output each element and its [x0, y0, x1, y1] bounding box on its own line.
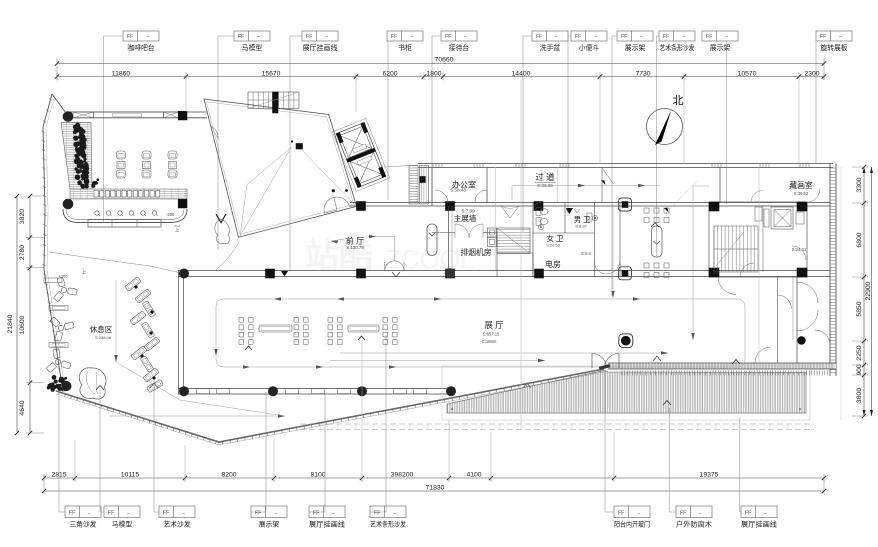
svg-text:22900: 22900: [865, 281, 872, 300]
svg-text:–: –: [257, 34, 260, 40]
svg-text:–: –: [410, 34, 413, 40]
svg-text:S:657.15: S:657.15: [483, 332, 500, 337]
svg-text:11860: 11860: [112, 71, 131, 78]
svg-text:6200: 6200: [382, 71, 397, 78]
svg-text:–: –: [325, 34, 328, 40]
svg-text:电房: 电房: [545, 259, 561, 269]
svg-text:–: –: [594, 34, 597, 40]
svg-text:FF: FF: [706, 34, 713, 40]
svg-text:3820: 3820: [19, 209, 26, 224]
svg-text:FF: FF: [306, 34, 313, 40]
svg-text:FF: FF: [536, 34, 543, 40]
svg-text:展示架: 展示架: [259, 521, 280, 529]
svg-text:21840: 21840: [7, 314, 14, 333]
svg-text:小便斗: 小便斗: [579, 43, 600, 52]
svg-text:2300: 2300: [804, 71, 819, 78]
svg-text:北: 北: [673, 94, 684, 107]
svg-text:S:7.89: S:7.89: [461, 209, 475, 214]
svg-text:展示架: 展示架: [625, 44, 646, 52]
svg-text:6800: 6800: [856, 232, 863, 247]
svg-text:S:8.37: S:8.37: [575, 224, 587, 229]
svg-text:咖啡吧台: 咖啡吧台: [127, 43, 154, 52]
svg-text:–: –: [682, 34, 685, 40]
svg-text:户外防腐木: 户外防腐木: [676, 520, 712, 529]
svg-text:展示架: 展示架: [710, 44, 731, 52]
svg-text:FF: FF: [618, 511, 625, 517]
svg-text:900: 900: [856, 364, 863, 376]
svg-text:14400: 14400: [512, 71, 531, 78]
svg-text:7730: 7730: [635, 71, 650, 78]
svg-text:FF: FF: [680, 511, 687, 517]
svg-text:接待台: 接待台: [449, 43, 470, 52]
svg-text:阳台内开玻门: 阳台内开玻门: [614, 520, 650, 529]
svg-text:过 道: 过 道: [535, 172, 555, 182]
svg-text:FF: FF: [238, 34, 245, 40]
svg-text:FF: FF: [313, 511, 320, 517]
svg-text:398200: 398200: [391, 472, 414, 479]
svg-text:3300: 3300: [856, 177, 863, 192]
svg-text:–: –: [332, 511, 335, 517]
svg-text:15670: 15670: [262, 71, 281, 78]
svg-text:艺术沙发: 艺术沙发: [163, 520, 190, 529]
svg-text:5850: 5850: [856, 301, 863, 316]
svg-text:S:8.4: S:8.4: [581, 251, 591, 256]
svg-text:8200: 8200: [221, 472, 236, 479]
svg-text:8100: 8100: [310, 472, 325, 479]
svg-text:–: –: [637, 511, 640, 517]
svg-text:3800: 3800: [856, 388, 863, 403]
svg-text:洗手盆: 洗手盆: [540, 43, 561, 52]
svg-text:上: 上: [82, 268, 86, 274]
svg-text:藏画室: 藏画室: [789, 180, 813, 190]
svg-text:展厅挂画线: 展厅挂画线: [309, 520, 345, 529]
svg-text:FF: FF: [663, 34, 670, 40]
svg-text:S:10.53: S:10.53: [546, 243, 561, 248]
svg-text:FF: FF: [820, 34, 827, 40]
svg-text:马模型: 马模型: [242, 43, 263, 52]
svg-text:上: 上: [175, 226, 179, 232]
svg-text:马模型: 马模型: [112, 520, 133, 529]
svg-text:1800: 1800: [426, 71, 441, 78]
svg-text:FF: FF: [575, 34, 582, 40]
svg-text:–: –: [146, 34, 149, 40]
svg-text:–: –: [555, 34, 558, 40]
svg-text:10115: 10115: [121, 472, 140, 479]
svg-text:–: –: [725, 34, 728, 40]
svg-text:FF: FF: [445, 34, 452, 40]
svg-text:FF: FF: [745, 511, 752, 517]
svg-text:S:24.31: S:24.31: [792, 247, 807, 252]
svg-text:–: –: [464, 34, 467, 40]
svg-text:4100: 4100: [466, 472, 481, 479]
svg-text:前 厅: 前 厅: [346, 236, 364, 246]
svg-text:休息区: 休息区: [90, 324, 113, 334]
svg-text:4640: 4640: [19, 400, 26, 415]
svg-text:展厅挂画线: 展厅挂画线: [741, 520, 777, 529]
svg-text:–: –: [640, 34, 643, 40]
svg-text:FF: FF: [255, 511, 262, 517]
svg-text:FF: FF: [108, 511, 115, 517]
svg-text:S:58.48: S:58.48: [450, 188, 466, 193]
svg-text:FF: FF: [374, 511, 381, 517]
svg-text:艺术条形沙发: 艺术条形沙发: [370, 520, 406, 529]
svg-text:10570: 10570: [738, 71, 757, 78]
svg-text:FF: FF: [391, 34, 398, 40]
svg-text:C:156m: C:156m: [482, 339, 497, 344]
svg-text:展 厅: 展 厅: [484, 320, 503, 330]
svg-text:–: –: [839, 34, 842, 40]
svg-text:FF: FF: [621, 34, 628, 40]
svg-text:2780: 2780: [19, 245, 26, 260]
svg-text:–: –: [764, 511, 767, 517]
svg-text:书柜: 书柜: [398, 43, 412, 52]
svg-text:S:39.52: S:39.52: [794, 191, 809, 196]
svg-text:S:130.78: S:130.78: [346, 245, 364, 250]
svg-text:–: –: [393, 511, 396, 517]
svg-text:–: –: [127, 511, 130, 517]
svg-text:–: –: [182, 511, 185, 517]
svg-text:2250: 2250: [856, 345, 863, 360]
svg-text:70660: 70660: [435, 57, 454, 64]
svg-text:FF: FF: [127, 34, 134, 40]
svg-text:展厅挂画线: 展厅挂画线: [303, 43, 338, 52]
svg-text:–: –: [88, 511, 91, 517]
svg-text:–: –: [699, 511, 702, 517]
svg-text:三角沙发: 三角沙发: [69, 520, 96, 529]
svg-text:艺术条形沙发: 艺术条形沙发: [660, 43, 695, 52]
svg-text:排烟机房: 排烟机房: [460, 247, 491, 257]
svg-text:S:298.06: S:298.06: [95, 335, 112, 340]
svg-text:FF: FF: [69, 511, 76, 517]
svg-text:FF: FF: [163, 511, 170, 517]
svg-text:19375: 19375: [700, 472, 719, 479]
svg-text:旋转展板: 旋转展板: [820, 43, 847, 52]
svg-text:71830: 71830: [426, 485, 445, 492]
svg-text:10600: 10600: [19, 315, 26, 334]
svg-text:-200: -200: [166, 212, 175, 217]
svg-text:主展墙: 主展墙: [454, 213, 477, 223]
svg-text:–: –: [274, 511, 277, 517]
